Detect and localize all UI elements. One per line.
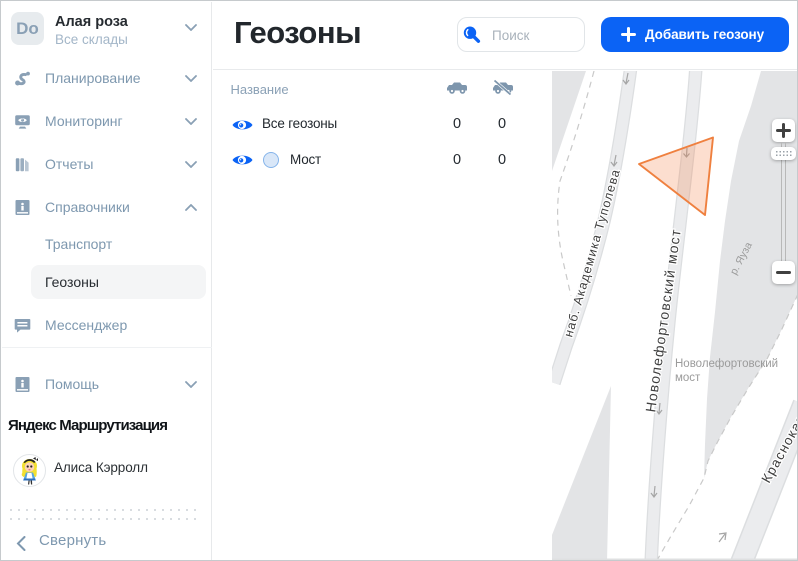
svg-text:мост: мост bbox=[675, 372, 701, 384]
svg-text:Новолефортовский: Новолефортовский bbox=[675, 358, 778, 370]
